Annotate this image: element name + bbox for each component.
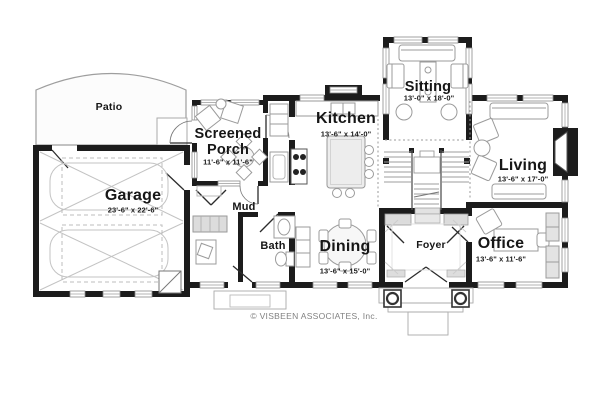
room-label-kitchen: Kitchen (316, 110, 376, 128)
room-label-living: Living (499, 157, 547, 175)
stairs (384, 150, 469, 210)
ceiling-break-lines (378, 101, 470, 208)
range-icon (291, 149, 307, 184)
room-label-office: Office (478, 235, 525, 253)
kitchen-island (327, 136, 374, 198)
room-label-dining: Dining (320, 238, 371, 256)
room-label-screened-porch: Screened Porch (181, 126, 275, 158)
room-label-garage: Garage (105, 187, 161, 205)
room-dims-screened-porch: 11'-6" x 11'-6" (203, 158, 253, 167)
room-label-foyer: Foyer (416, 240, 446, 252)
porch-columns (384, 290, 469, 307)
room-label-mud: Mud (232, 201, 255, 213)
room-label-patio: Patio (96, 102, 123, 114)
room-label-bath: Bath (260, 240, 285, 252)
room-dims-dining: 13'-6" x 15'-0" (320, 267, 371, 276)
entry-porch (379, 288, 473, 335)
living-furniture (471, 103, 548, 199)
floor-plan: Patio Garage 23'-6" x 22'-6" Screened Po… (0, 0, 600, 405)
room-dims-living: 13'-6" x 17'-0" (498, 175, 549, 184)
room-dims-kitchen: 13'-6" x 14'-0" (321, 130, 372, 139)
copyright-text: © VISBEEN ASSOCIATES, Inc. (250, 311, 377, 321)
floor-plan-drawing (0, 0, 600, 405)
room-dims-sitting: 13'-0" x 18'-0" (404, 94, 455, 103)
back-stoop (214, 291, 286, 309)
room-dims-garage: 23'-6" x 22'-6" (108, 206, 159, 215)
garage-cars (40, 152, 183, 290)
room-dims-office: 13'-6" x 11'-6" (476, 255, 526, 264)
garage-utility (159, 271, 181, 293)
mud-lockers (193, 216, 227, 264)
